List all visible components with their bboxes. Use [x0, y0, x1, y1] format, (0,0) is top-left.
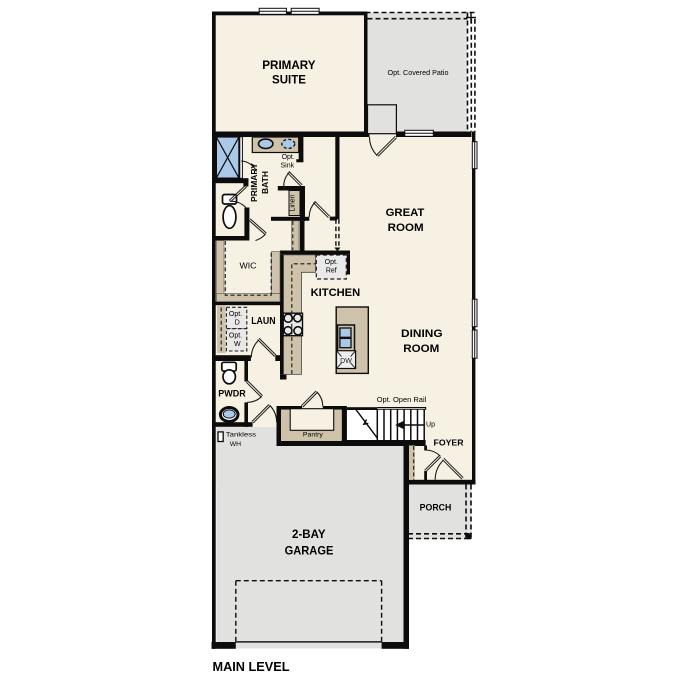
svg-text:W: W — [234, 341, 241, 348]
svg-text:PRIMARY: PRIMARY — [249, 163, 259, 202]
svg-text:LAUN: LAUN — [251, 316, 275, 327]
svg-text:WIC: WIC — [240, 261, 257, 270]
svg-text:ROOM: ROOM — [388, 222, 424, 234]
svg-text:Sink: Sink — [280, 162, 294, 169]
svg-text:Opt.: Opt. — [325, 259, 338, 266]
svg-text:DW: DW — [340, 358, 352, 365]
svg-text:WH: WH — [230, 441, 241, 448]
svg-text:PRIMARY: PRIMARY — [262, 60, 316, 72]
svg-text:GREAT: GREAT — [386, 207, 425, 219]
svg-text:Opt. Open Rail: Opt. Open Rail — [377, 395, 427, 404]
svg-text:DINING: DINING — [401, 328, 443, 340]
svg-text:Opt.: Opt. — [229, 332, 242, 339]
svg-text:PWDR: PWDR — [218, 389, 246, 399]
svg-text:FOYER: FOYER — [434, 438, 464, 448]
svg-text:D: D — [235, 320, 240, 327]
svg-text:GARAGE: GARAGE — [285, 546, 334, 558]
svg-text:Tankless: Tankless — [226, 432, 257, 439]
svg-text:BATH: BATH — [260, 171, 270, 194]
svg-text:KITCHEN: KITCHEN — [311, 287, 361, 299]
svg-text:Opt. Covered Patio: Opt. Covered Patio — [388, 70, 449, 77]
svg-text:Up: Up — [426, 421, 435, 428]
svg-text:Pantry: Pantry — [303, 431, 324, 438]
svg-text:MAIN LEVEL: MAIN LEVEL — [213, 659, 290, 674]
svg-text:SUITE: SUITE — [272, 75, 306, 87]
svg-text:Opt.: Opt. — [282, 154, 295, 161]
svg-text:PORCH: PORCH — [420, 502, 452, 512]
svg-text:ROOM: ROOM — [403, 343, 439, 355]
svg-text:Opt.: Opt. — [229, 311, 242, 318]
svg-text:2-BAY: 2-BAY — [292, 529, 326, 541]
svg-text:Ref: Ref — [326, 268, 337, 275]
svg-text:Linen: Linen — [290, 194, 297, 211]
